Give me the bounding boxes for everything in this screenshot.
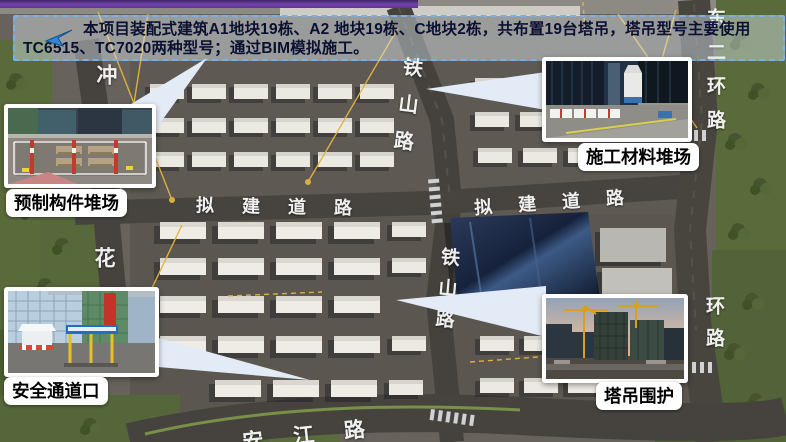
inset-photo-material-yard xyxy=(542,57,692,142)
pointer-material-yard xyxy=(426,72,546,110)
inset-photo-crane-enclosure xyxy=(542,294,688,383)
callout-label-crane-enclosure: 塔吊围护 xyxy=(596,382,682,410)
photo-material-yard xyxy=(546,61,688,138)
pointer-crane-enclosure xyxy=(396,286,546,337)
photo-precast-yard xyxy=(8,108,152,184)
photo-crane-enclosure xyxy=(546,298,684,379)
inset-photo-precast-yard xyxy=(4,104,156,188)
callout-label-safety-gate: 安全通道口 xyxy=(4,377,108,405)
callout-label-precast-yard: 预制构件堆场 xyxy=(6,189,127,217)
callout-label-material-yard: 施工材料堆场 xyxy=(578,143,699,171)
inset-photo-safety-gate xyxy=(4,287,159,377)
photo-safety-gate xyxy=(8,291,155,373)
slide-root: 冲 铁山路 铁山路 拟建道路 拟建道路 花 东二环路 环路 安江路 本项目装配式… xyxy=(0,0,786,442)
pointer-safety-gate xyxy=(158,338,310,380)
